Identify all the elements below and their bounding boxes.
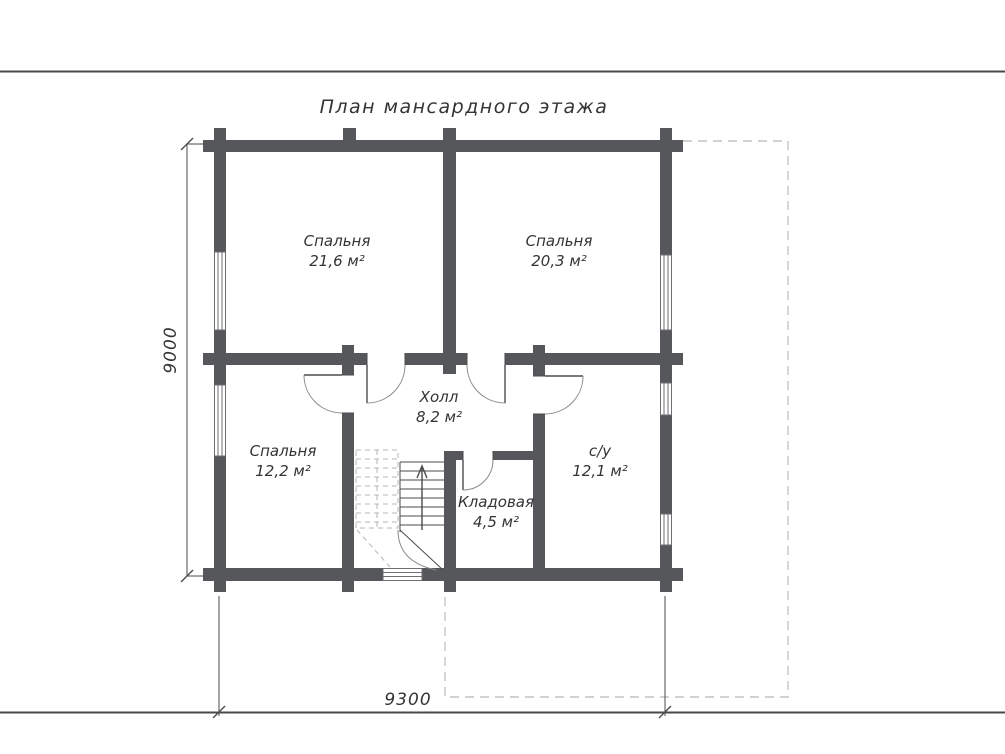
door-storage (463, 451, 493, 490)
door-bedroom-top-left (367, 353, 405, 403)
room-area: 4,5 м² (458, 512, 534, 532)
room-name: Спальня (250, 441, 317, 461)
dimension-lines (181, 138, 671, 718)
staircase (356, 450, 444, 570)
floor-plan-page: План мансардного этажа Спальня 21,6 м² С… (0, 0, 1005, 754)
door-bedroom-top-right (467, 353, 505, 403)
dimension-label-horizontal: 9300 (384, 690, 431, 710)
room-name: с/у (572, 441, 628, 461)
door-bathroom (533, 376, 583, 414)
terrace-dashed-outline (445, 141, 788, 697)
window-bottom (383, 568, 422, 581)
page-title: План мансардного этажа (320, 96, 609, 118)
vertical-dimension-line (181, 138, 204, 582)
room-label-bedroom-bottom-left: Спальня 12,2 м² (250, 441, 317, 481)
room-label-bedroom-top-left: Спальня 21,6 м² (304, 231, 371, 271)
room-label-hall: Холл 8,2 м² (416, 387, 462, 427)
window-left-2 (214, 385, 226, 456)
room-name: Кладовая (458, 492, 534, 512)
room-name: Спальня (526, 231, 593, 251)
window-left-1 (214, 252, 226, 330)
top-wall-log-tab (343, 128, 356, 140)
storage-wall (444, 451, 545, 460)
room-name: Холл (416, 387, 462, 407)
stair-winder (398, 530, 443, 570)
room-area: 21,6 м² (304, 251, 371, 271)
room-area: 12,1 м² (572, 461, 628, 481)
window-right-1 (660, 255, 672, 330)
dimension-label-vertical: 9000 (161, 326, 181, 373)
room-name: Спальня (304, 231, 371, 251)
room-area: 20,3 м² (526, 251, 593, 271)
stair-upper-flight-dashed (356, 450, 398, 567)
bedrooms-divider-wall (443, 128, 456, 374)
window-right-3 (660, 514, 672, 545)
stairs-wall (444, 451, 456, 592)
room-area: 12,2 м² (250, 461, 317, 481)
window-right-2 (660, 383, 672, 415)
room-label-storage: Кладовая 4,5 м² (458, 492, 534, 532)
door-bedroom-bottom-left (304, 375, 354, 413)
horizontal-dimension-line (213, 596, 671, 718)
room-area: 8,2 м² (416, 407, 462, 427)
walls (203, 128, 683, 592)
room-label-bedroom-top-right: Спальня 20,3 м² (526, 231, 593, 271)
room-label-bathroom: с/у 12,1 м² (572, 441, 628, 481)
